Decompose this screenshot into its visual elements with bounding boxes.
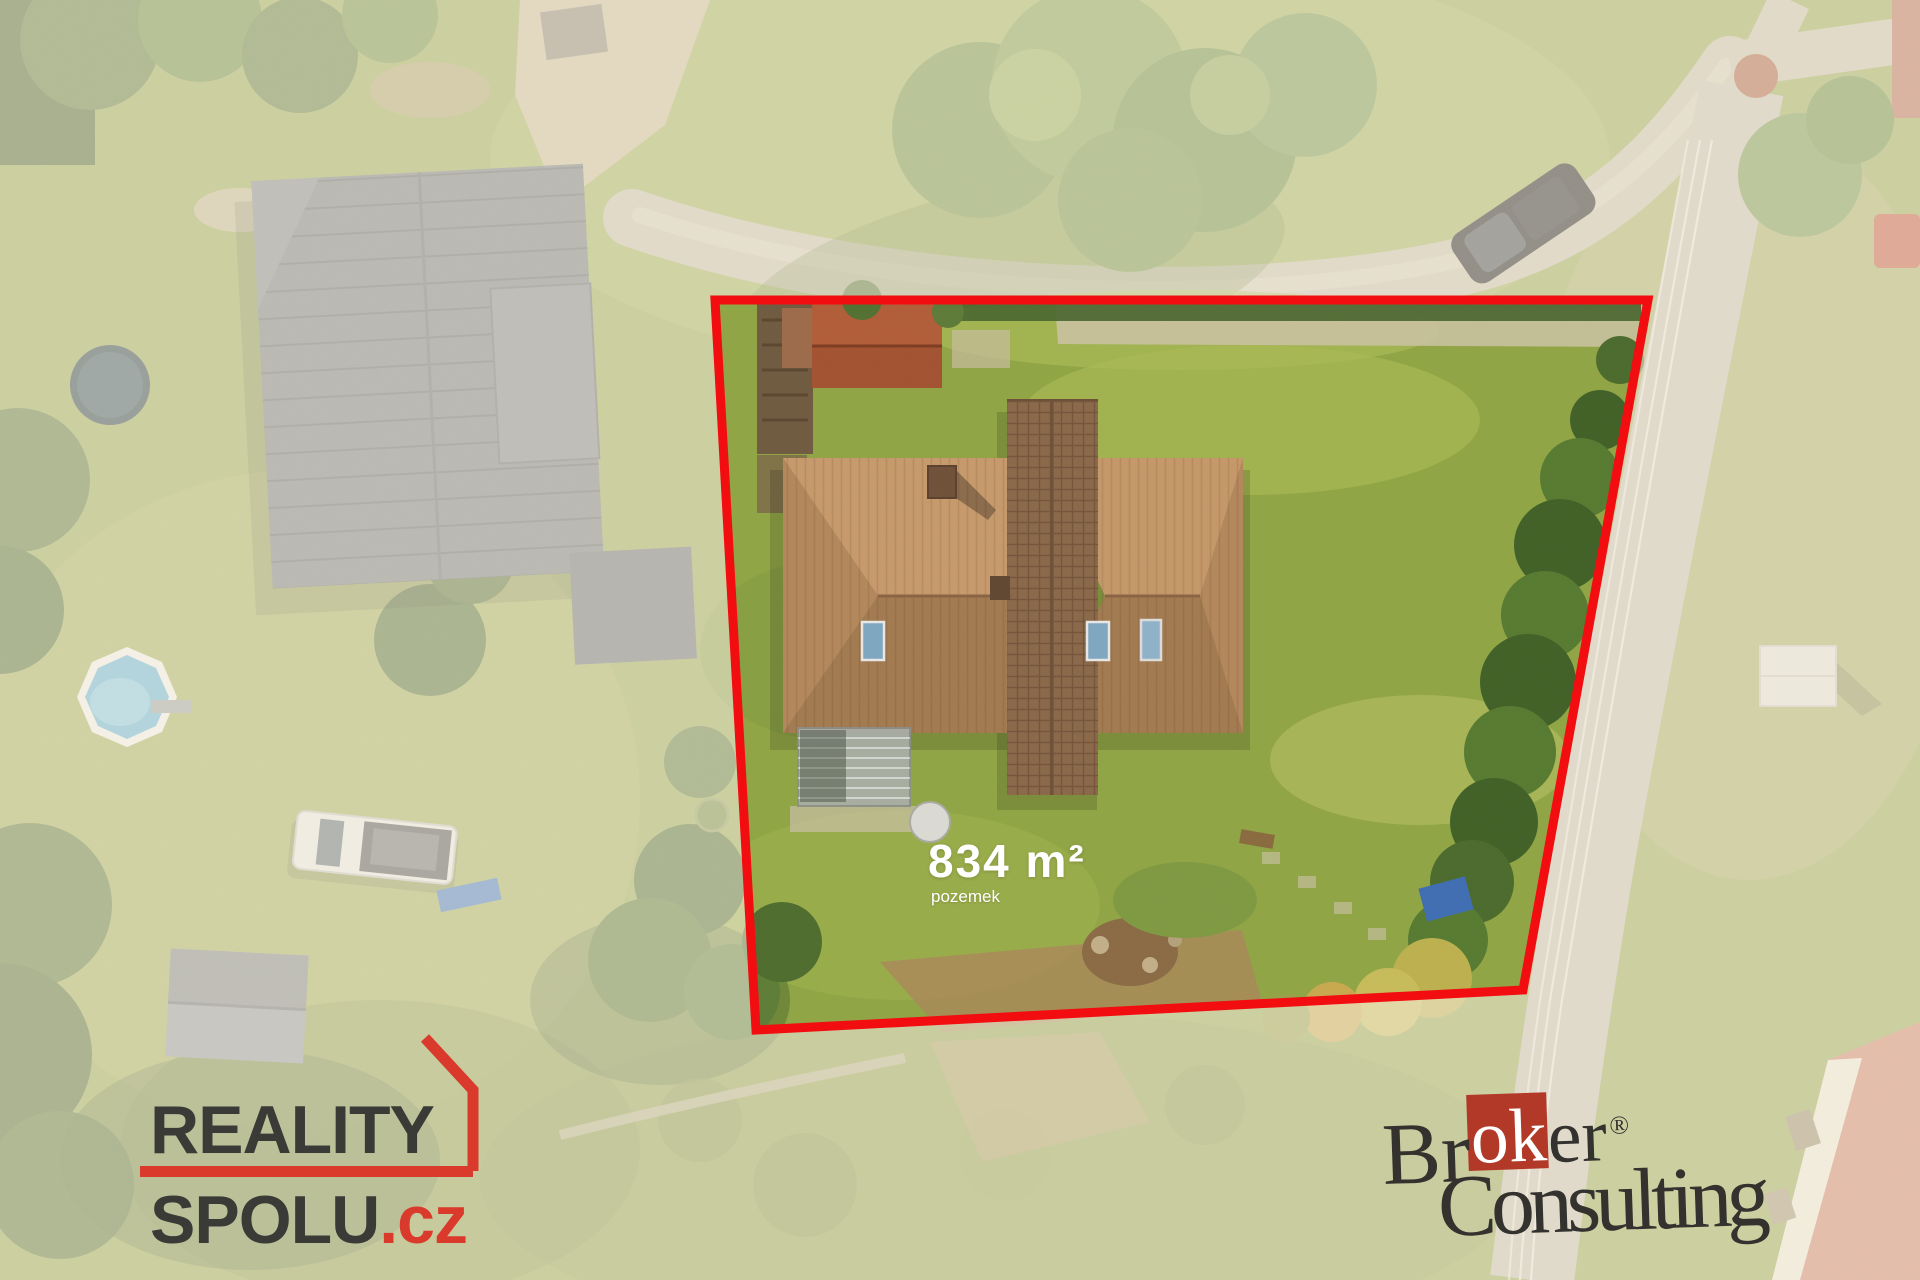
broker-seg2: ok	[1468, 1093, 1549, 1180]
broker-consulting-line1: Broker®	[1380, 1076, 1843, 1200]
broker-seg1: Br	[1381, 1104, 1472, 1204]
area-value: 834 m²	[928, 838, 1086, 884]
area-badge: 834 m² pozemek	[928, 838, 1086, 905]
reality-spolu-logo: REALITY SPOLU.cz	[138, 1018, 483, 1258]
reality-spolu-word2: SPOLU.cz	[150, 1186, 467, 1254]
broker-consulting-logo: Broker® Consulting	[1380, 1076, 1846, 1280]
reality-spolu-word1: REALITY	[150, 1096, 434, 1164]
broker-seg3: er	[1546, 1093, 1608, 1179]
reality-spolu-word2-text: SPOLU	[150, 1182, 379, 1258]
registered-trademark-symbol: ®	[1609, 1110, 1630, 1140]
reality-spolu-tld: .cz	[379, 1182, 467, 1258]
property-aerial-listing-image: 834 m² pozemek REALITY SPOLU.cz Broker® …	[0, 0, 1920, 1280]
area-sublabel: pozemek	[931, 888, 1086, 905]
